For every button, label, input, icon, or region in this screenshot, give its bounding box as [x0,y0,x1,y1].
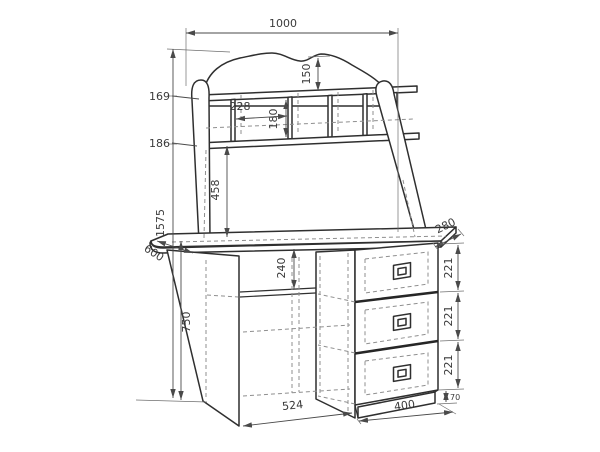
drawer-handle [394,365,411,382]
cubby-divider [288,97,292,139]
technical-drawing-page: 1000 150 169 186 228 180 458 1575 [0,0,600,452]
hidden-edge-line [206,119,414,128]
extension-line [437,403,457,404]
dim-label-hutch-opening: 458 [209,180,222,201]
dim-label-under-top-drop: 240 [275,258,288,279]
dim-label-kneehole-width: 524 [282,398,304,413]
dim-label-drawer-unit-width: 400 [393,398,416,414]
dim-label-drawer-1: 221 [442,258,455,279]
dim-label-crest-height: 150 [300,64,313,85]
extension-line [357,419,361,424]
leader-line [172,143,197,146]
extension-line [136,400,207,402]
drawer-unit-side-panel [316,250,355,418]
dim-label-desk-height: 750 [180,312,193,333]
extension-line [167,49,230,52]
desk-furniture [150,53,456,426]
cubby-divider [363,94,367,136]
dim-label-cubby-height: 180 [267,109,280,130]
cubby-divider [328,95,332,137]
hutch-left-post [192,80,210,242]
dim-drawer-heights: 221 221 221 70 [437,243,464,404]
dim-label-drawer-2: 221 [442,306,455,327]
dim-hutch-opening: 458 [209,146,227,237]
dim-label-cubby-width: 228 [230,100,251,113]
dim-label-total-height: 1575 [154,209,167,237]
dim-label-plinth: 70 [450,393,460,402]
dim-under-top-drop: 240 [275,249,294,289]
extension-line [440,291,464,292]
drawer-handle [394,263,411,280]
desk-technical-drawing: 1000 150 169 186 228 180 458 1575 [0,0,600,452]
dimension-line [243,413,352,426]
extension-line [438,389,464,390]
dim-label-shelf-spacing: 186 [149,137,170,150]
left-side-panel [167,250,239,426]
dim-label-drawer-3: 221 [442,355,455,376]
dim-label-overall-width: 1000 [269,17,297,30]
hutch-right-post [376,81,428,240]
extension-line [440,340,464,341]
dim-label-top-shelf-offset: 169 [149,90,170,103]
drawer-handle [394,314,411,331]
